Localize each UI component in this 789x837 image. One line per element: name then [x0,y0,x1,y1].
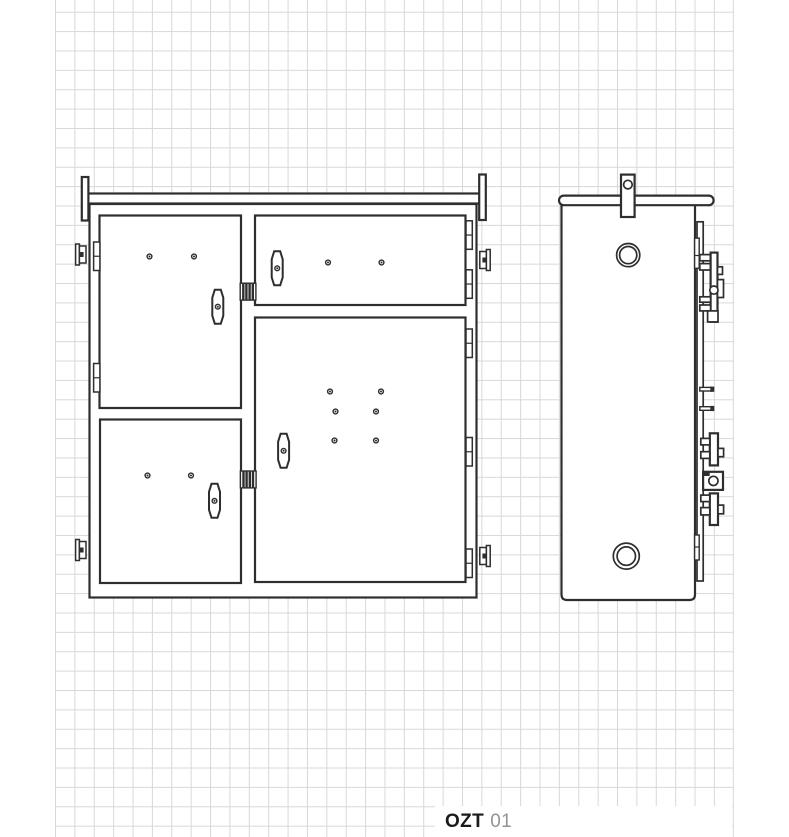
hole-bottom-inner [617,547,635,565]
door-dot [374,409,379,414]
side-stud [700,387,715,392]
door-handle [212,290,223,324]
door-dot [328,389,333,394]
door-handle [272,251,283,285]
label-series: OZT [445,811,484,833]
latch-block [240,283,256,300]
door-hinge [94,364,100,393]
side-door-panel [697,222,703,581]
cabinet-side-view [559,175,724,600]
drawing-label: OZT 01 [435,806,732,837]
hanger-hole [624,180,633,189]
door-dot [326,260,331,265]
door-dot [147,254,152,259]
wall-bracket [76,244,86,265]
latch-block [240,471,256,488]
rail-post-left [82,177,89,221]
mounting-rail [86,194,480,204]
door-hinge [466,549,472,578]
door-dot [379,260,384,265]
door-handle [209,484,220,518]
drawing-page: OZT 01 [0,0,789,837]
door-handle [278,434,289,468]
hole-top-inner [620,247,637,264]
door-hinge [466,270,472,299]
rail-post-right [479,175,486,221]
side-rail [559,196,714,206]
technical-drawing [0,0,789,837]
door-dot [379,389,384,394]
door-dot [192,254,197,259]
door-dot [333,409,338,414]
cabinet-front-view [76,175,491,598]
door-top-right [255,216,466,306]
door-hinge [94,242,100,271]
door-hinge [466,221,472,250]
door-dot [145,473,150,478]
door-dot [374,438,379,443]
side-hinge [695,238,700,268]
wall-bracket [480,546,490,567]
label-model: 01 [490,811,512,833]
wall-bracket [76,540,86,561]
side-stud [700,406,715,411]
door-dot [332,438,337,443]
door-dot [189,473,194,478]
door-hinge [466,329,472,358]
wall-bracket [480,250,490,271]
door-hinge [466,438,472,467]
